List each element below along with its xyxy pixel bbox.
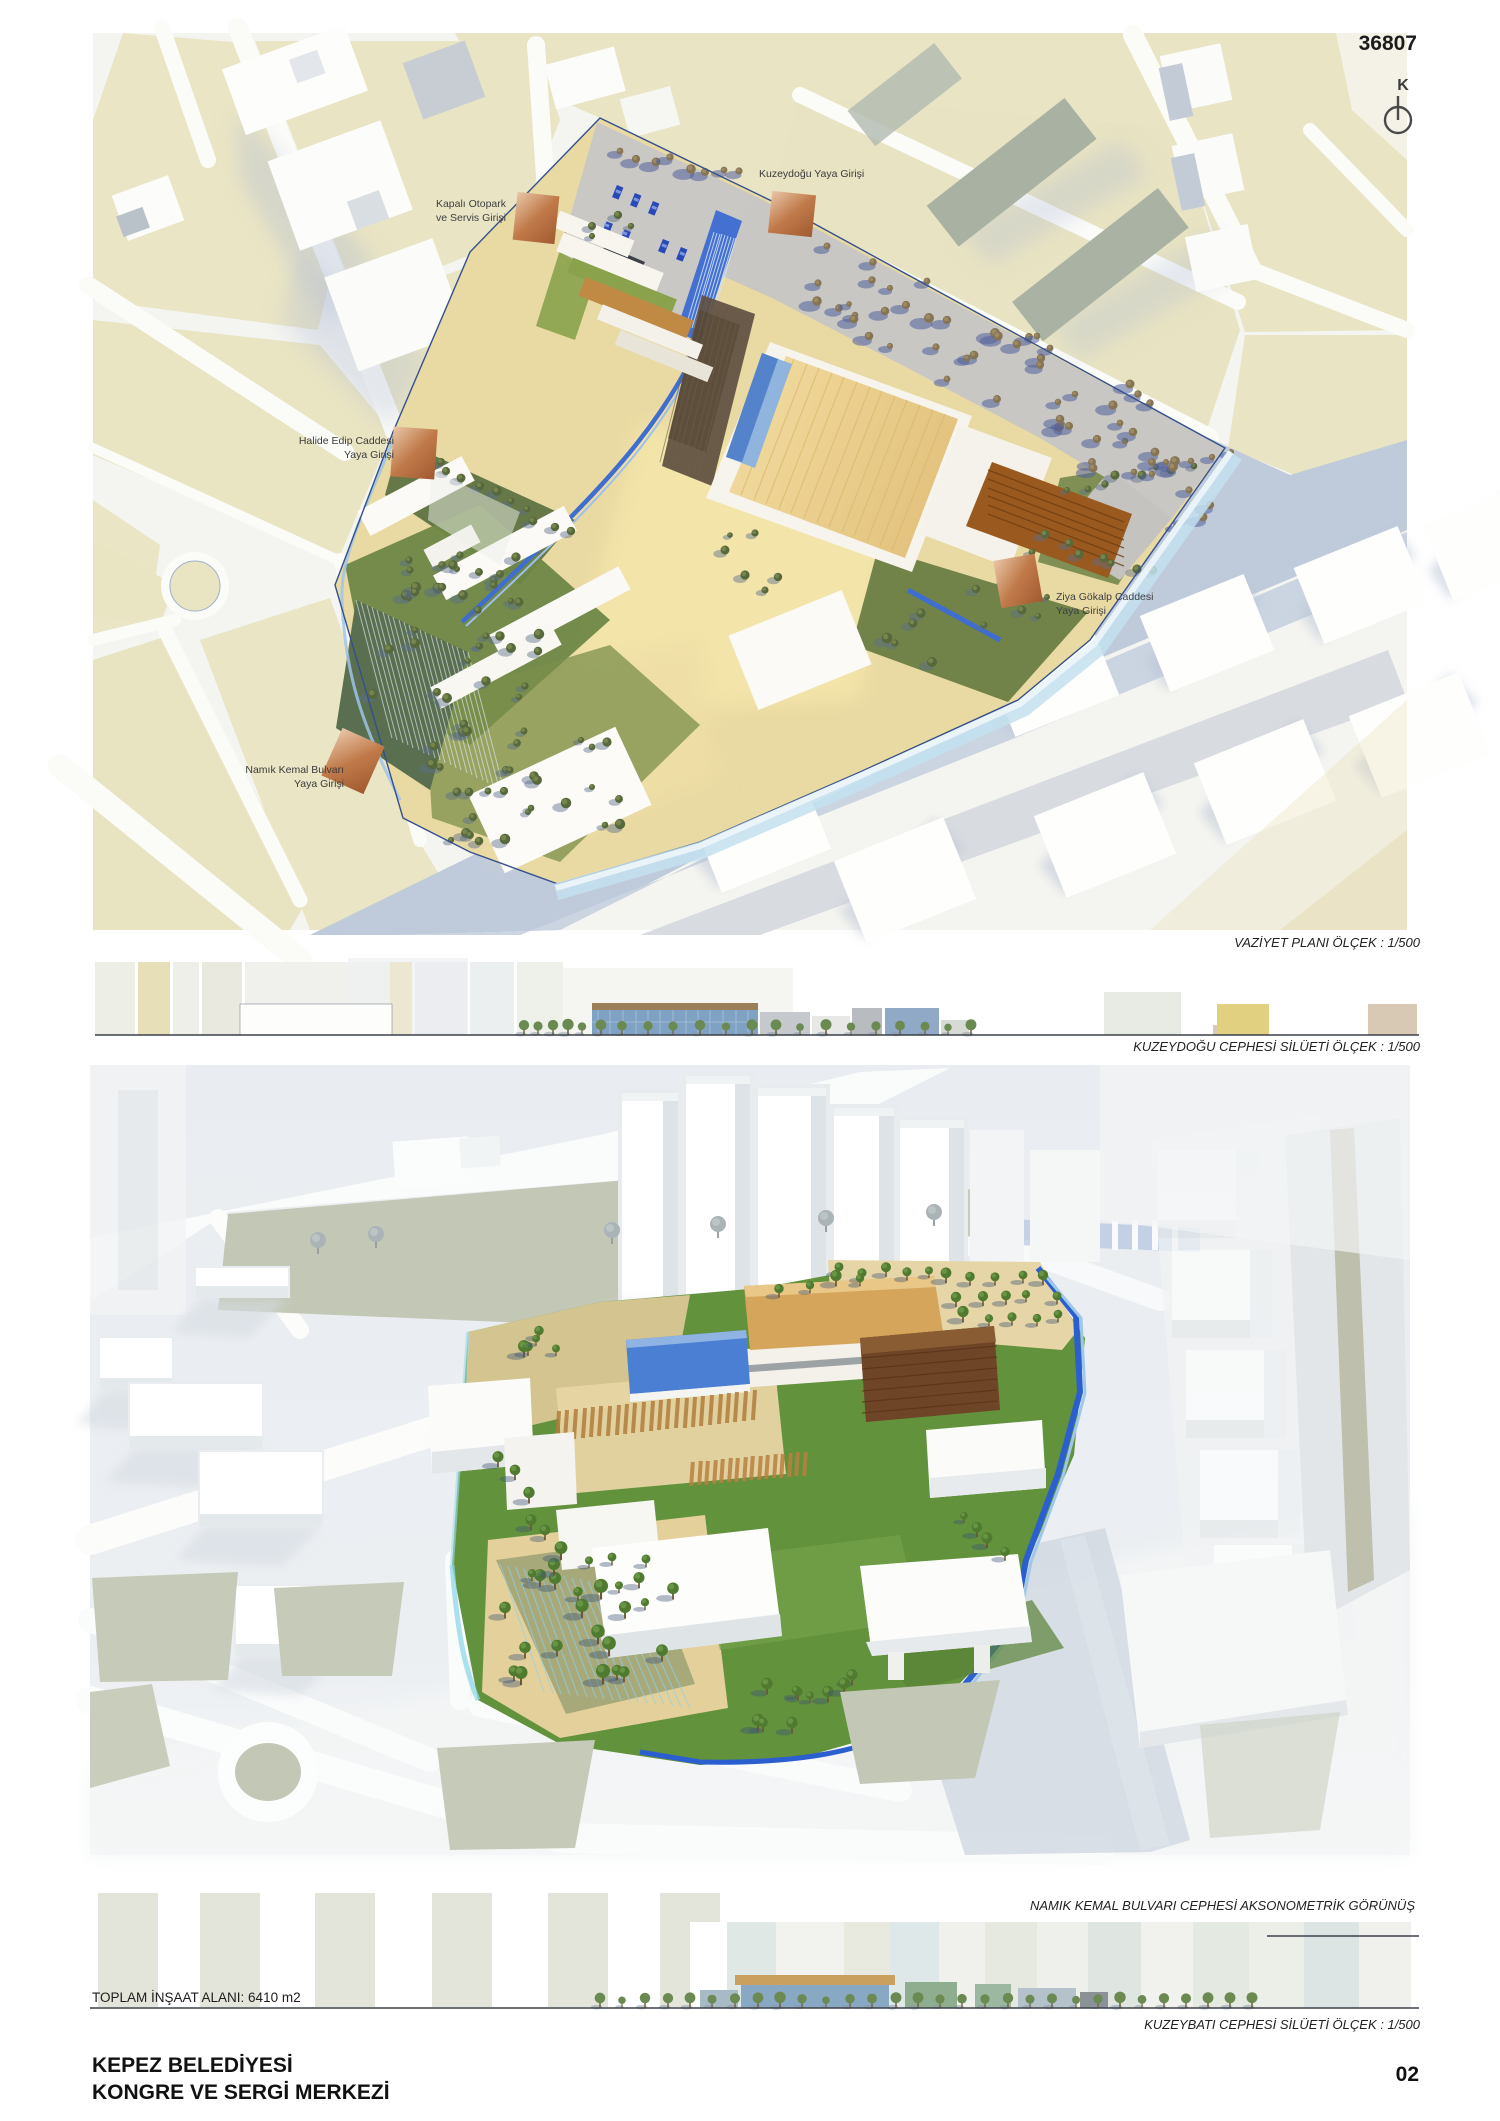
svg-text:KUZEYDOĞU CEPHESİ SİLÜETİ ÖLÇE: KUZEYDOĞU CEPHESİ SİLÜETİ ÖLÇEK : 1/500 <box>1133 1039 1421 1054</box>
svg-text:Namık Kemal Bulvarı: Namık Kemal Bulvarı <box>245 764 344 776</box>
svg-text:Kuzeydoğu Yaya Girişi: Kuzeydoğu Yaya Girişi <box>759 168 864 180</box>
svg-text:Halide Edip Caddesi: Halide Edip Caddesi <box>299 435 394 447</box>
svg-text:K: K <box>1397 77 1409 94</box>
svg-text:KEPEZ BELEDİYESİ: KEPEZ BELEDİYESİ <box>92 2054 293 2077</box>
svg-text:Yaya Girişi: Yaya Girişi <box>294 778 344 790</box>
svg-text:KUZEYBATI CEPHESİ SİLÜETİ ÖLÇE: KUZEYBATI CEPHESİ SİLÜETİ ÖLÇEK : 1/500 <box>1144 2017 1421 2032</box>
svg-text:KONGRE VE SERGİ MERKEZİ: KONGRE VE SERGİ MERKEZİ <box>92 2081 390 2104</box>
svg-text:ve Servis Girişi: ve Servis Girişi <box>436 212 506 224</box>
svg-text:TOPLAM İNŞAAT ALANI: 6410 m2: TOPLAM İNŞAAT ALANI: 6410 m2 <box>92 1990 301 2005</box>
svg-text:36807: 36807 <box>1359 32 1417 55</box>
svg-text:NAMIK KEMAL BULVARI CEPHESİ AK: NAMIK KEMAL BULVARI CEPHESİ AKSONOMETRİK… <box>1030 1898 1415 1913</box>
svg-text:Yaya Girişi: Yaya Girişi <box>1056 605 1106 617</box>
svg-text:VAZİYET PLANI ÖLÇEK : 1/500: VAZİYET PLANI ÖLÇEK : 1/500 <box>1234 935 1420 950</box>
svg-text:Yaya Girişi: Yaya Girişi <box>344 449 394 461</box>
svg-text:Ziya Gökalp Caddesi: Ziya Gökalp Caddesi <box>1056 591 1153 603</box>
svg-text:02: 02 <box>1396 2063 1419 2086</box>
svg-text:Kapalı Otopark: Kapalı Otopark <box>436 198 507 210</box>
